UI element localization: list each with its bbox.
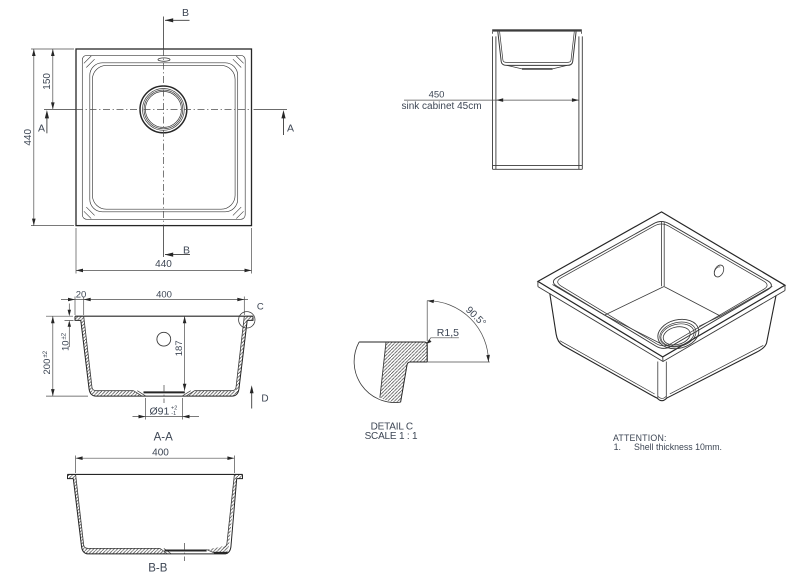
- svg-text:1.: 1.: [614, 442, 621, 452]
- svg-text:200: 200: [42, 359, 53, 375]
- svg-text:187: 187: [174, 340, 185, 356]
- svg-text:Shell thickness 10mm.: Shell thickness 10mm.: [634, 442, 722, 452]
- svg-text:10: 10: [61, 340, 72, 351]
- svg-text:SCALE 1 : 1: SCALE 1 : 1: [365, 431, 418, 442]
- svg-text:400: 400: [156, 289, 172, 300]
- svg-text:D: D: [261, 394, 268, 405]
- svg-text:150: 150: [42, 73, 53, 90]
- svg-text:A-A: A-A: [154, 432, 174, 444]
- svg-text:sink cabinet 45cm: sink cabinet 45cm: [402, 101, 482, 112]
- svg-text:450: 450: [429, 90, 445, 101]
- svg-text:-1: -1: [171, 411, 176, 417]
- svg-text:Ø91: Ø91: [150, 405, 170, 417]
- svg-text:440: 440: [155, 259, 172, 270]
- svg-text:B: B: [183, 244, 190, 256]
- svg-text:400: 400: [152, 448, 169, 459]
- svg-text:440: 440: [23, 129, 34, 146]
- svg-text:A: A: [38, 123, 45, 135]
- svg-text:±2: ±2: [43, 350, 49, 357]
- svg-text:R1,5: R1,5: [437, 327, 459, 339]
- svg-text:A: A: [287, 123, 294, 135]
- svg-text:±2: ±2: [61, 332, 67, 339]
- svg-text:B: B: [182, 7, 189, 19]
- svg-text:C: C: [257, 301, 264, 312]
- svg-text:20: 20: [76, 289, 87, 300]
- svg-text:B-B: B-B: [148, 563, 168, 575]
